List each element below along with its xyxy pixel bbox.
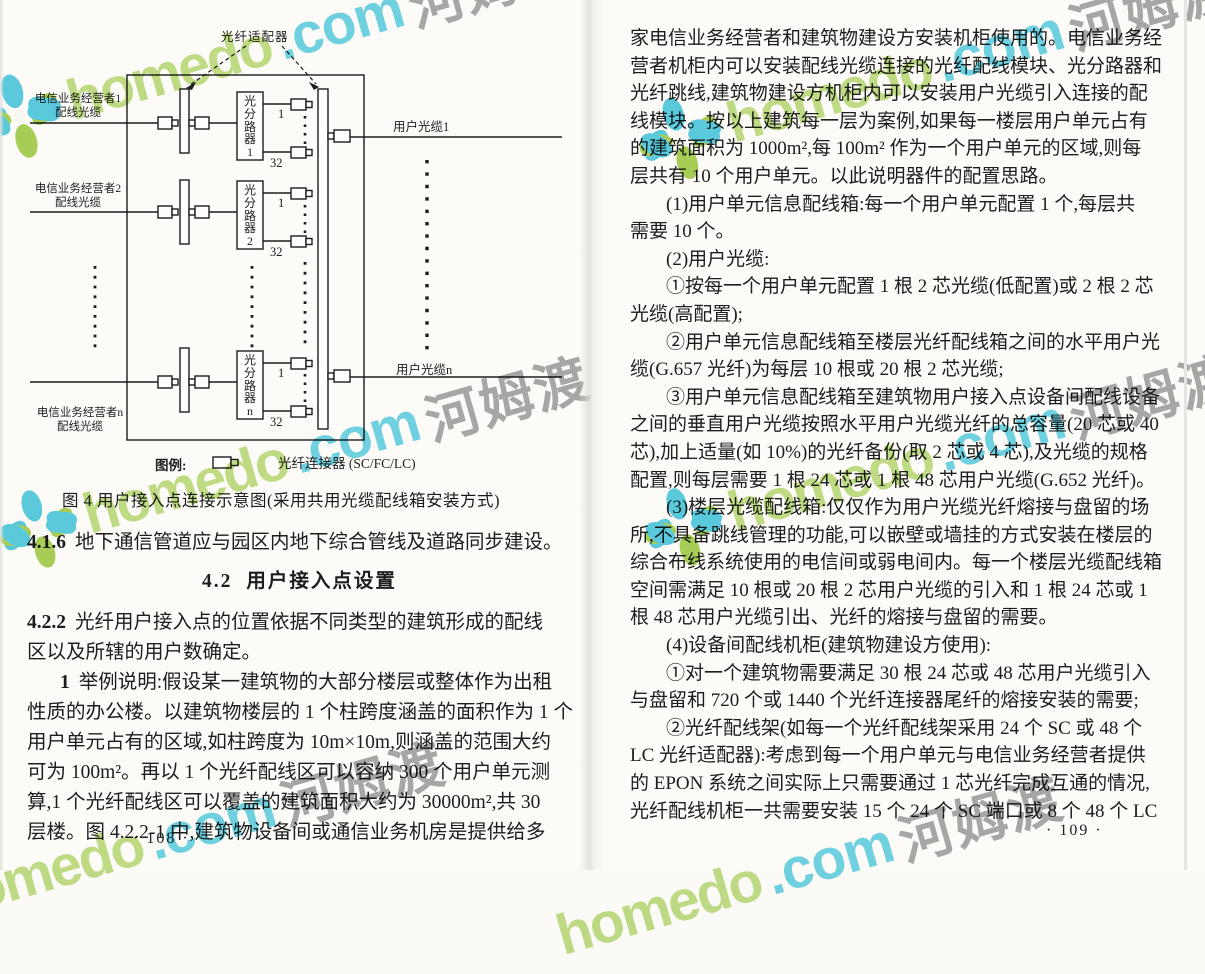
text-line: 根 48 芯用户光缆引出、光纤的熔接与盘留的需要。 [630, 604, 1178, 632]
text-line: 芯),加上适量(如 10%)的光纤备份(取 2 芯或 4 芯),及光缆的规格 [630, 439, 1178, 467]
text-line: 光缆(高配置); [630, 301, 1178, 329]
splitter-n-label: 光 分 路 器 n [237, 354, 263, 418]
right-page-text: 家电信业务经营者和建筑物建设方安装机柜使用的。电信业务经营者机柜内可以安装配线光… [630, 25, 1178, 825]
text-line: 层楼。图 4.2.2-1 中,建筑物设备间或通信业务机房是提供给多 [27, 818, 572, 848]
text-line: 光纤跳线,建筑物建设方机柜内可以安装用户光缆引入连接的配 [630, 80, 1178, 108]
text-line: 之间的垂直用户光缆按照水平用户光缆光纤的总容量(20 芯或 40 [630, 411, 1178, 439]
text-line: ②光纤配线架(如每一个光纤配线架采用 24 个 SC 或 48 个 [630, 715, 1178, 743]
port-label: 1 [278, 196, 284, 210]
port-label: 32 [270, 415, 283, 429]
adapter-label: 光纤适配器 [221, 26, 289, 45]
text-line: 4.1.6地下通信管道应与园区内地下综合管线及道路同步建设。 [27, 528, 572, 558]
port-label: 32 [270, 245, 283, 259]
right-page-number: · 109 · [1046, 822, 1103, 840]
text-line: 配置,则每层需要 1 根 24 芯或 1 根 48 芯用户光缆(G.652 光纤… [630, 467, 1178, 495]
splitter-1-label: 光 分 路 器 1 [237, 95, 263, 159]
legend-item-text: 光纤连接器 (SC/FC/LC) [278, 452, 416, 472]
text-line: 4.2.2光纤用户接入点的位置依据不同类型的建筑形成的配线 [27, 608, 572, 638]
text-line: (4)设备间配线机柜(建筑物建设方使用): [630, 632, 1178, 660]
text-line: 所,不具备跳线管理的功能,可以嵌壁或墙挂的方式安装在楼层的 [630, 522, 1178, 550]
legend-label: 图例: [155, 454, 187, 474]
text-line: 缆(G.657 光纤)为每层 10 根或 20 根 2 芯光缆; [630, 356, 1178, 384]
text-line: (3)楼层光缆配线箱:仅仅作为用户光缆光纤熔接与盘留的场 [630, 494, 1178, 522]
text-line: 综合布线系统使用的电信间或弱电间内。每一个楼层光缆配线箱 [630, 549, 1178, 577]
user-cable-n-label: 用户光缆n [396, 359, 452, 378]
left-page-text: 4.1.6地下通信管道应与园区内地下综合管线及道路同步建设。4.2用户接入点设置… [27, 528, 572, 848]
scan-left-edge [0, 0, 4, 870]
page-gutter [579, 0, 603, 870]
text-line: 1举例说明:假设某一建筑物的大部分楼层或整体作为出租 [27, 668, 572, 698]
arrowheads [186, 82, 319, 90]
text-line: 的建筑面积为 1000m²,每 100m² 作为一个用户单元的区域,则每 [630, 135, 1178, 163]
text-line: 营者机柜内可以安装配线光缆连接的光纤配线模块、光分路器和 [630, 53, 1178, 81]
legend-connector-icon [213, 457, 238, 468]
figure-4-schematic: 1 32 1 32 1 32 [0, 0, 600, 520]
text-line: 用户单元占有的区域,如柱跨度为 10m×10m,则涵盖的范围大约 [27, 728, 572, 758]
text-line: 空间需满足 10 根或 20 根 2 芯用户光缆的引入和 1 根 24 芯或 1 [630, 577, 1178, 605]
text-line: (1)用户单元信息配线箱:每一个用户单元配置 1 个,每层共 [630, 191, 1178, 219]
text-line: 家电信业务经营者和建筑物建设方安装机柜使用的。电信业务经 [630, 25, 1178, 53]
port-label: 1 [278, 107, 284, 121]
book-spread: 1 32 1 32 1 32 光纤适配器 电信业务经营者1配线光缆 电信业务经营… [0, 0, 1205, 870]
left-page-number: · 108 · [133, 830, 190, 848]
shared-adapter-plate [318, 89, 328, 429]
text-line: 与盘留和 720 个或 1440 个光纤连接器尾纤的熔接安装的需要; [630, 687, 1178, 715]
text-line: 需要 10 个。 [630, 218, 1178, 246]
text-line: ①对一个建筑物需要满足 30 根 24 芯或 48 芯用户光缆引入 [630, 660, 1178, 688]
text-line: 的 EPON 系统之间实际上只需要通过 1 芯光纤完成互通的情况, [630, 770, 1178, 798]
user-cable-1-label: 用户光缆1 [393, 116, 449, 135]
scan-right-edge [1184, 0, 1187, 870]
text-line: LC 光纤适配器):考虑到每一个用户单元与电信业务经营者提供 [630, 742, 1178, 770]
adapter-pointer-lines [190, 46, 316, 85]
operator-2-label: 电信业务经营者2配线光缆 [22, 182, 134, 210]
port-label: 1 [278, 366, 284, 380]
operator-1-label: 电信业务经营者1配线光缆 [22, 92, 134, 120]
text-line: (2)用户光缆: [630, 246, 1178, 274]
operator-n-label: 电信业务经营者n配线光缆 [24, 406, 136, 434]
figure-caption: 图 4 用户接入点连接示意图(采用共用光缆配线箱安装方式) [62, 487, 500, 511]
text-line: ③用户单元信息配线箱至建筑物用户接入点设备间配线设备 [630, 384, 1178, 412]
text-line: 区以及所辖的用户数确定。 [27, 638, 572, 668]
text-line: 线模块。按以上建筑每一层为案例,如果每一楼层用户单元占有 [630, 108, 1178, 136]
text-line: 算,1 个光纤配线区可以覆盖的建筑面积大约为 30000m²,共 30 [27, 788, 572, 818]
port-label: 32 [270, 156, 283, 170]
text-line: ①按每一个用户单元配置 1 根 2 芯光缆(低配置)或 2 根 2 芯 [630, 273, 1178, 301]
text-line: 层共有 10 个用户单元。以此说明器件的配置思路。 [630, 163, 1178, 191]
text-line: 4.2用户接入点设置 [27, 567, 572, 597]
text-line: 性质的办公楼。以建筑物楼层的 1 个柱跨度涵盖的面积作为 1 个 [27, 698, 572, 728]
text-line: ②用户单元信息配线箱至楼层光纤配线箱之间的水平用户光 [630, 329, 1178, 357]
text-line: 可为 100m²。再以 1 个光纤配线区可以容纳 300 个用户单元测 [27, 758, 572, 788]
splitter-2-label: 光 分 路 器 2 [237, 184, 263, 248]
